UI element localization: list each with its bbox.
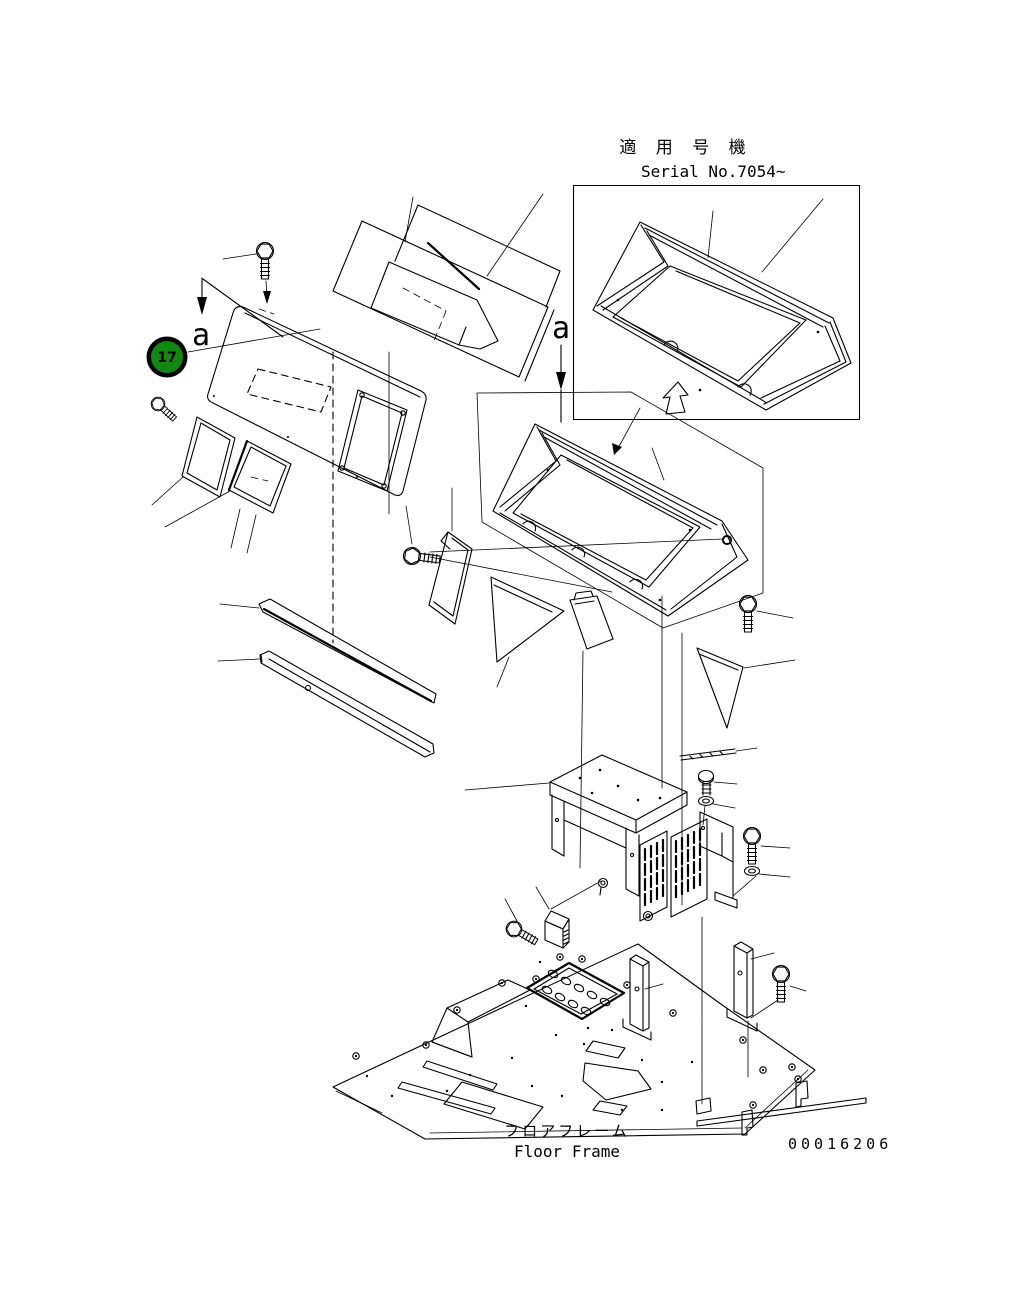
strip-lower <box>260 651 434 757</box>
section-arrow-a-left: a <box>192 278 283 353</box>
frame-panel-rear <box>395 205 560 341</box>
section-label-a-right: a <box>552 311 570 346</box>
section-a-view: a <box>403 311 795 905</box>
hex-bolt <box>503 918 540 948</box>
floor-hole-marks <box>366 961 693 1111</box>
small-bracket <box>696 1098 711 1114</box>
leader-line <box>505 881 601 921</box>
leader-line <box>662 596 682 905</box>
hex-bolt <box>773 966 790 1003</box>
grille-panel-left <box>640 831 667 921</box>
serial-view-box <box>574 186 860 420</box>
leader-line <box>702 917 748 1104</box>
trim-rod <box>680 749 736 760</box>
hidden-edge <box>259 309 274 314</box>
trim-strips <box>218 599 549 790</box>
duct-cover-assembly <box>550 755 737 921</box>
exploded-parts-drawing: 適 用 号 機 Serial No.7054~ a <box>0 0 1020 1309</box>
vent-opening <box>527 963 624 1019</box>
gusset-plate-left <box>491 577 564 662</box>
grille-panel-right <box>671 819 707 917</box>
support-posts <box>623 917 806 1114</box>
hood-rear-view <box>593 222 851 410</box>
parts-diagram-page: 適 用 号 機 Serial No.7054~ a <box>0 0 1020 1309</box>
leader-line <box>497 651 795 868</box>
hex-bolt <box>403 547 441 568</box>
floor-frame-label-en: Floor Frame <box>514 1142 620 1161</box>
washer <box>699 797 714 806</box>
leader-line <box>645 984 663 989</box>
hex-bolt <box>740 596 757 633</box>
hex-bolt <box>257 243 274 280</box>
mount-block <box>545 911 569 948</box>
leader-line <box>405 194 543 276</box>
notched-side-panel <box>429 532 472 624</box>
fastener-column <box>680 748 790 896</box>
floor-plate-outline <box>333 944 815 1139</box>
floor-frame-label-jp: フロアフレーム <box>504 1122 630 1140</box>
side-bracket-arm <box>700 812 737 908</box>
gusset-plate-right <box>697 648 743 728</box>
hex-bolt <box>148 394 179 424</box>
leader-line <box>714 782 737 784</box>
frame-panel-front <box>333 221 554 381</box>
leader-line <box>733 874 790 896</box>
cover-plate-small-left <box>182 417 235 497</box>
leader-line <box>708 199 823 272</box>
section-label-a-left: a <box>192 318 210 353</box>
floor-frame <box>333 944 866 1139</box>
leader-line <box>757 611 793 618</box>
cover-plate-small-right <box>229 441 291 513</box>
leader-line <box>703 804 735 825</box>
pan-screw <box>699 771 714 796</box>
upper-left-panels: a 17 <box>147 194 561 643</box>
end-bolt-marker <box>723 536 732 545</box>
pilot-hole <box>702 827 705 830</box>
access-lid-panel <box>338 390 407 491</box>
edge-rail <box>697 1081 866 1135</box>
strip-upper <box>259 599 436 703</box>
part-number-badge[interactable]: 17 <box>147 337 188 378</box>
hex-bolt <box>744 828 761 865</box>
serial-applicability-section: 適 用 号 機 Serial No.7054~ <box>574 138 860 420</box>
arrow-head <box>263 291 271 304</box>
leader-line <box>751 953 774 959</box>
serial-number-label: Serial No.7054~ <box>641 162 786 181</box>
section-boundary <box>477 392 763 628</box>
leader-line <box>736 748 757 751</box>
leader-line <box>218 604 549 790</box>
post-left <box>623 955 651 1040</box>
hood-main <box>493 424 748 616</box>
leader-line <box>761 846 790 848</box>
mount-block-group <box>503 881 601 949</box>
leader-line <box>406 506 412 544</box>
drawing-number: 00016206 <box>788 1135 892 1153</box>
section-arrow-a-right: a <box>552 311 570 422</box>
pedestal-wedge <box>432 980 530 1057</box>
arrow-head <box>612 443 622 455</box>
small-bracket-plate <box>570 591 613 649</box>
post-right <box>727 942 757 1031</box>
floor-cutouts <box>398 1041 651 1129</box>
up-arrow-icon <box>663 382 688 414</box>
badge-number: 17 <box>157 350 176 366</box>
applicability-title-jp: 適 用 号 機 <box>619 138 752 158</box>
footer-captions: フロアフレーム Floor Frame 00016206 <box>504 1122 892 1161</box>
washer <box>745 867 760 876</box>
